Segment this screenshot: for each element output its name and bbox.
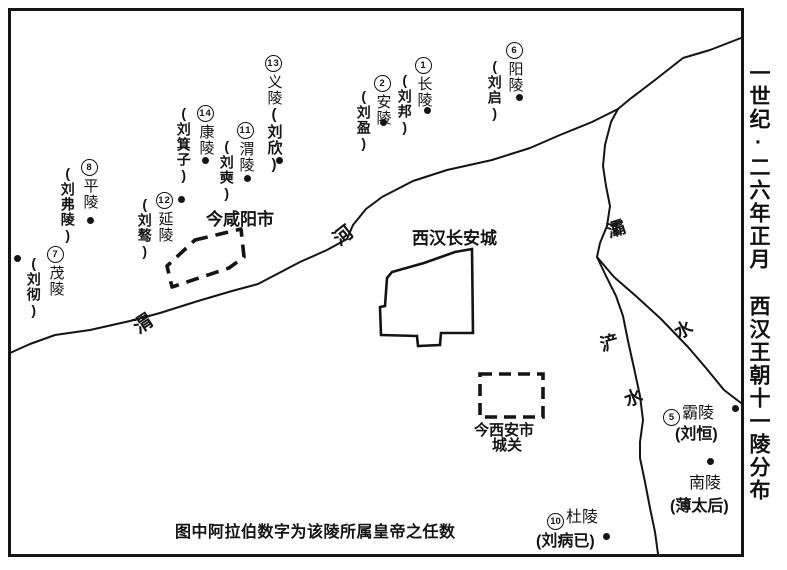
title-gap (758, 271, 759, 295)
tomb-name-changling: 长陵 (416, 76, 433, 108)
ba-river-upper-path (597, 257, 741, 403)
tomb-name-yanling: 延陵 (157, 211, 174, 243)
map-caption: 图中阿拉伯数字为该陵所属皇帝之任数 (175, 518, 456, 542)
map-title-vertical: 一世纪·二六年正月西汉王朝十一陵分布 (748, 62, 769, 502)
tomb-name-weiling: 渭陵 (238, 141, 255, 173)
tomb-label-yiling: 13义陵(刘欣) (265, 54, 282, 174)
tomb-marker-changling (424, 107, 431, 114)
emperor-label-nanling: (薄太后) (670, 492, 729, 516)
emperor-label-anling: (刘盈) (356, 88, 371, 152)
tomb-number-changling: 1 (415, 57, 432, 74)
tomb-marker-yangling (516, 94, 523, 101)
tomb-marker-kangling (202, 157, 209, 164)
tomb-number-yangling: 6 (506, 42, 523, 59)
emperor-label-baling: (刘恒) (675, 420, 718, 444)
tomb-marker-pingling (87, 217, 94, 224)
changan-city-label: 西汉长安城 (412, 224, 497, 249)
tomb-label-maoling: 7茂陵 (47, 245, 64, 297)
changan-city-wall (380, 249, 473, 346)
tomb-label-pingling: 8平陵 (81, 158, 98, 210)
tomb-marker-nanling (707, 458, 714, 465)
tomb-label-yanling: 12延陵 (156, 191, 173, 243)
emperor-label-duling: (刘病已) (536, 527, 595, 551)
xian-boundary (480, 374, 543, 417)
map-linework (0, 0, 787, 570)
map-screenshot: 6阳陵 (刘启) 1长陵 (刘邦) 2安陵 (刘盈) 13义陵(刘欣) 14康陵… (0, 0, 787, 570)
tomb-marker-yanling (178, 196, 185, 203)
emperor-label-maoling: (刘彻) (26, 255, 41, 319)
tomb-marker-weiling (244, 175, 251, 182)
tomb-number-yiling: 13 (265, 55, 282, 72)
tomb-marker-duling (603, 533, 610, 540)
tomb-marker-baling (732, 405, 739, 412)
tomb-name-yiling: 义陵 (266, 74, 283, 106)
tomb-label-changling: 1长陵 (415, 56, 432, 108)
xian-city-label-line2: 城关 (492, 434, 522, 455)
tomb-label-kangling: 14康陵 (197, 104, 214, 156)
tomb-marker-yiling (276, 157, 283, 164)
tomb-label-yangling: 6阳陵 (506, 41, 523, 93)
emperor-label-changling: (刘邦) (397, 72, 412, 136)
emperor-label-weiling: (刘奭) (219, 138, 234, 202)
tomb-name-kangling: 康陵 (198, 124, 215, 156)
tomb-name-maoling: 茂陵 (48, 265, 65, 297)
tomb-number-maoling: 7 (47, 246, 64, 263)
map-title-line2: 西汉王朝十一陵分布 (747, 295, 770, 502)
emperor-label-yanling: (刘骜) (137, 196, 152, 260)
tomb-label-weiling: 11渭陵 (237, 121, 254, 173)
xianyang-city-label: 今咸阳市 (206, 205, 274, 230)
tomb-number-yanling: 12 (156, 192, 173, 209)
xianyang-boundary (167, 229, 244, 287)
emperor-label-yangling: (刘启) (487, 58, 502, 122)
map-title-line1: 一世纪·二六年正月 (747, 62, 770, 271)
tomb-label-nanling: 南陵 (689, 469, 721, 493)
tomb-marker-anling (380, 119, 387, 126)
emperor-label-kangling: (刘箕子) (176, 105, 191, 184)
tomb-number-anling: 2 (374, 75, 391, 92)
tomb-number-kangling: 14 (197, 105, 214, 122)
tomb-name-duling: 杜陵 (566, 509, 598, 526)
tomb-number-pingling: 8 (81, 159, 98, 176)
emperor-label-pingling: (刘弗陵) (60, 165, 75, 244)
tomb-marker-maoling (14, 255, 21, 262)
tomb-number-weiling: 11 (237, 122, 254, 139)
tomb-name-yangling: 阳陵 (507, 61, 524, 93)
tomb-name-pingling: 平陵 (82, 178, 99, 210)
